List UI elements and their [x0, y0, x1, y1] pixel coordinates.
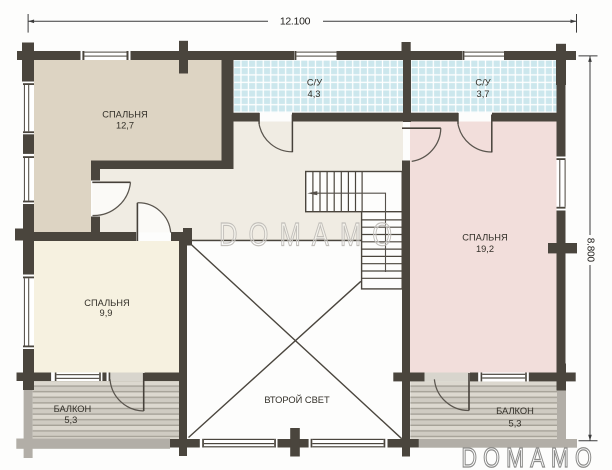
svg-text:БАЛКОН: БАЛКОН: [496, 406, 534, 416]
svg-text:19,2: 19,2: [476, 244, 494, 254]
svg-text:5,3: 5,3: [509, 419, 522, 429]
svg-text:СПАЛЬНЯ: СПАЛЬНЯ: [102, 110, 147, 120]
svg-text:ВТОРОЙ СВЕТ: ВТОРОЙ СВЕТ: [264, 394, 330, 405]
svg-text:4,3: 4,3: [308, 89, 321, 99]
svg-text:12.100: 12.100: [280, 15, 311, 27]
svg-text:С/У: С/У: [475, 77, 490, 87]
svg-text:5,3: 5,3: [64, 415, 77, 425]
svg-text:СПАЛЬНЯ: СПАЛЬНЯ: [462, 232, 507, 242]
svg-text:СПАЛЬНЯ: СПАЛЬНЯ: [84, 298, 129, 308]
svg-text:БАЛКОН: БАЛКОН: [54, 404, 92, 414]
svg-text:DOMAMO: DOMAMO: [219, 218, 403, 254]
svg-text:3,7: 3,7: [477, 89, 490, 99]
svg-text:12,7: 12,7: [116, 120, 134, 130]
svg-text:8.800: 8.800: [585, 238, 596, 263]
svg-text:С/У: С/У: [307, 77, 322, 87]
svg-text:DOMAMO: DOMAMO: [461, 444, 598, 470]
svg-text:9,9: 9,9: [100, 308, 113, 318]
